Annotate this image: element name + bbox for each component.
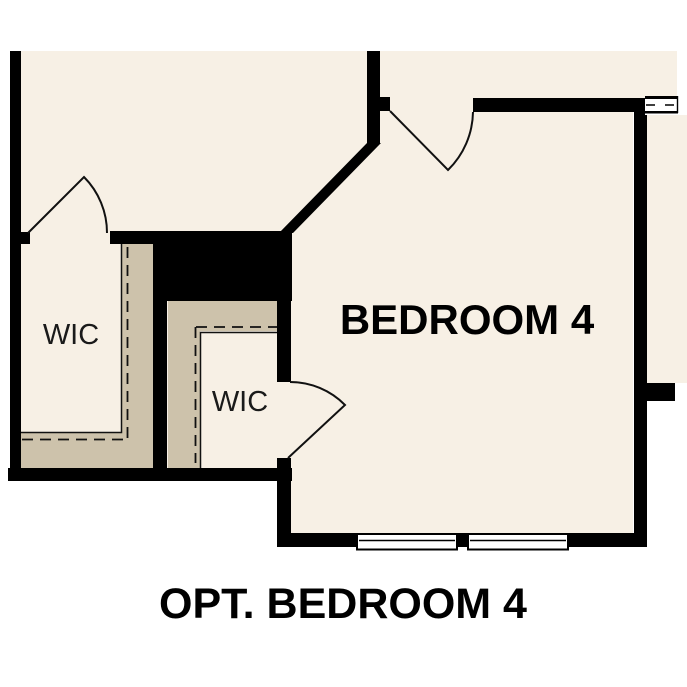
window-glass bbox=[468, 534, 568, 550]
shelf-band bbox=[21, 433, 153, 468]
room-label-wic-left: WIC bbox=[43, 319, 99, 351]
wall-segment-right-stub bbox=[647, 383, 675, 401]
window-bottom-right bbox=[468, 534, 568, 550]
wall-segment-door-jamb bbox=[10, 232, 30, 244]
window-top-right bbox=[645, 96, 678, 115]
wall-segment-bottom-left bbox=[8, 468, 292, 481]
wall-segment-mass bbox=[153, 231, 292, 301]
floor-right-strip bbox=[647, 115, 687, 383]
floor-plan: WIC WIC BEDROOM 4 OPT. BEDROOM 4 bbox=[0, 0, 687, 687]
wall-segment-left bbox=[10, 51, 21, 480]
window-frame-line bbox=[645, 111, 678, 114]
wall-segment-right bbox=[634, 98, 647, 547]
window-glass bbox=[357, 534, 457, 550]
wall-segment-bottom bbox=[277, 533, 647, 547]
window-bottom-left bbox=[357, 534, 457, 550]
floor-plan-canvas: WIC WIC BEDROOM 4 OPT. BEDROOM 4 bbox=[0, 0, 687, 687]
floor-top-right bbox=[633, 51, 677, 98]
floor-main bbox=[21, 51, 633, 468]
wall-segment-top bbox=[473, 98, 645, 112]
wall-segment-door-jamb bbox=[378, 97, 390, 111]
room-label-wic-right: WIC bbox=[212, 386, 268, 418]
plan-caption: OPT. BEDROOM 4 bbox=[159, 580, 527, 628]
window-frame-line bbox=[645, 96, 678, 99]
floor-bedroom-lower bbox=[291, 468, 633, 533]
wall-segment bbox=[277, 231, 291, 382]
room-label-bedroom4: BEDROOM 4 bbox=[340, 296, 595, 343]
wall-segment-mid bbox=[153, 231, 167, 470]
